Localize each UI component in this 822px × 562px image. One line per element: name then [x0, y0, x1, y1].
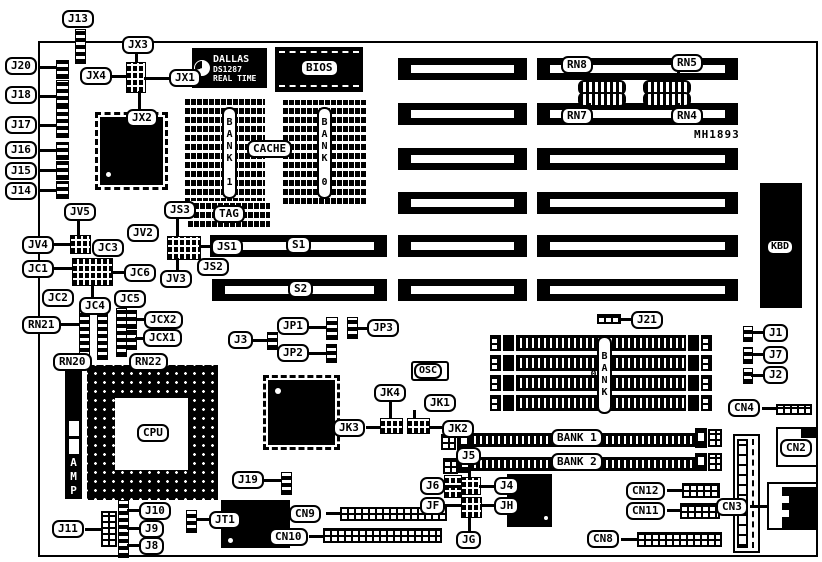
cn3-key-notch	[782, 496, 789, 503]
pin1-dot	[275, 388, 281, 394]
pointer-line	[176, 218, 179, 236]
pin1-dot	[106, 172, 111, 177]
connector-cn8	[637, 532, 722, 547]
pointer-line	[309, 535, 323, 538]
latch-hook	[461, 437, 467, 444]
cache-bank0-label: BANK 0	[317, 107, 332, 199]
slot-s2-label: S2	[288, 280, 313, 298]
isa-slot	[398, 103, 527, 125]
callout-j3: J3	[228, 331, 253, 349]
jumper-j17	[56, 108, 69, 138]
callout-jv2: JV2	[127, 224, 159, 242]
simm-latch	[503, 355, 514, 371]
jumper-j14	[56, 181, 69, 199]
pointer-line	[138, 91, 141, 109]
pointer-line	[480, 504, 494, 507]
callout-js1: JS1	[211, 238, 243, 256]
pointer-line	[751, 374, 763, 377]
callout-jf: JF	[420, 497, 445, 515]
jumper-j1	[743, 326, 753, 342]
pointer-line	[309, 326, 326, 329]
resistor-network-strip	[97, 308, 108, 360]
pointer-line	[762, 407, 776, 410]
resistor-network-rn7	[578, 92, 626, 107]
callout-j14: J14	[5, 182, 37, 200]
isa-slot	[537, 279, 738, 301]
callout-rn20: RN20	[53, 353, 92, 371]
pointer-line	[127, 527, 139, 530]
callout-cn9: CN9	[289, 505, 321, 523]
simm-bank2-label: BANK 2	[551, 453, 603, 471]
simm-latch	[688, 395, 699, 411]
simm-latch	[688, 335, 699, 351]
bios-dash-bottom	[279, 85, 359, 87]
pointer-line	[261, 479, 281, 482]
simm-latch	[503, 395, 514, 411]
simm-end-box	[701, 335, 712, 351]
bios-dash-top	[279, 51, 359, 53]
pointer-line	[751, 331, 763, 334]
simm-latch	[503, 375, 514, 391]
power-header-pins	[737, 439, 748, 548]
simm-end-box	[490, 395, 501, 411]
isa-slot	[398, 192, 527, 214]
pointer-line	[39, 66, 56, 69]
callout-cn12: CN12	[626, 482, 665, 500]
jumper-block-js	[167, 236, 201, 260]
simm-end-box	[490, 375, 501, 391]
pointer-line	[619, 318, 631, 321]
isa-slot	[398, 235, 527, 257]
callout-j6: J6	[420, 477, 445, 495]
jumper-block-jc	[72, 258, 113, 286]
callout-cn4: CN4	[728, 399, 760, 417]
callout-js2: JS2	[197, 258, 229, 276]
jumper-block-jv45	[70, 235, 91, 254]
callout-jh: JH	[494, 497, 519, 515]
callout-rn7: RN7	[561, 107, 593, 125]
callout-jk4: JK4	[374, 384, 406, 402]
isa-slot	[398, 148, 527, 170]
simm-latch	[503, 335, 514, 351]
callout-jk1: JK1	[424, 394, 456, 412]
callout-j2: J2	[763, 366, 788, 384]
pointer-line	[196, 518, 209, 521]
resistor-network-rn4	[643, 92, 691, 107]
latch-hook	[698, 433, 704, 441]
pointer-line	[135, 318, 144, 321]
pointer-line	[750, 505, 767, 508]
callout-j18: J18	[5, 86, 37, 104]
callout-jp3: JP3	[367, 319, 399, 337]
simm-end-box	[701, 355, 712, 371]
pointer-line	[77, 220, 80, 235]
connector-j11	[101, 511, 117, 547]
cache-label: CACHE	[247, 140, 292, 158]
isa-slot	[398, 58, 527, 80]
callout-cn11: CN11	[626, 502, 665, 520]
pointer-line	[444, 504, 461, 507]
pointer-line	[366, 426, 380, 429]
power-header-key-line	[752, 439, 754, 548]
pointer-line	[39, 149, 56, 152]
pointer-line	[326, 512, 340, 515]
callout-rn21: RN21	[22, 316, 61, 334]
callout-rn8: RN8	[561, 56, 593, 74]
callout-j19: J19	[232, 471, 264, 489]
callout-cn8: CN8	[587, 530, 619, 548]
latch-hook	[698, 457, 704, 465]
cn3-key-notch	[782, 510, 789, 517]
pointer-line	[127, 544, 139, 547]
pointer-line	[39, 124, 56, 127]
jumper-j3	[267, 332, 278, 350]
amp-brand-text: AMP	[67, 456, 80, 498]
callout-j9: J9	[139, 520, 164, 538]
isa-slot	[537, 235, 738, 257]
jumper-jp2	[326, 344, 337, 363]
amp-slot	[69, 421, 79, 436]
callout-jk3: JK3	[333, 419, 365, 437]
chipset-qfp-b	[268, 380, 335, 445]
cpu-label: CPU	[137, 424, 169, 442]
rtc-chip-ds1287: DALLAS DS1287 REAL TIME	[192, 48, 267, 88]
pointer-line	[677, 72, 680, 81]
callout-j21: J21	[631, 311, 663, 329]
jumper-j15	[56, 161, 69, 180]
connector-cn4	[776, 404, 812, 415]
pointer-line	[91, 284, 94, 297]
callout-rn4: RN4	[671, 107, 703, 125]
pointer-line	[429, 426, 442, 429]
callout-jx1: JX1	[169, 69, 201, 87]
callout-jp2: JP2	[277, 344, 309, 362]
callout-jcx1: JCX1	[143, 329, 182, 347]
callout-jc1: JC1	[22, 260, 54, 278]
simm-end-box	[708, 429, 722, 447]
callout-cn2: CN2	[780, 439, 812, 457]
jumper-j16	[56, 142, 69, 160]
chipset-qfp-a	[100, 117, 163, 185]
simm-end-box	[708, 453, 722, 471]
callout-j4: J4	[494, 477, 519, 495]
pointer-line	[111, 271, 124, 274]
pointer-line	[135, 337, 143, 340]
simm-end-box	[701, 395, 712, 411]
callout-j16: J16	[5, 141, 37, 159]
callout-jc5: JC5	[114, 290, 146, 308]
simm-latch	[688, 355, 699, 371]
callout-cn10: CN10	[269, 528, 308, 546]
jumper-j13	[75, 29, 86, 64]
pointer-line	[252, 339, 268, 342]
connector-cn10	[323, 528, 442, 543]
connector-cn12	[682, 483, 720, 498]
callout-jg: JG	[456, 531, 481, 549]
isa-slot	[537, 148, 738, 170]
pointer-line	[112, 75, 126, 78]
amp-slot	[69, 439, 79, 454]
simm-bank1-label: BANK 1	[551, 429, 603, 447]
motherboard-diagram: J13 J20 J18 J17 J16 J15 J14 JX3 JX4 JX1 …	[0, 0, 822, 562]
jumper-jcx1	[126, 330, 137, 350]
connector-j21	[597, 314, 621, 324]
pointer-line	[60, 323, 79, 326]
pointer-line	[479, 485, 494, 488]
callout-jx4: JX4	[80, 67, 112, 85]
callout-js3: JS3	[164, 201, 196, 219]
pointer-line	[85, 528, 101, 531]
jumper-block-jk12	[407, 418, 430, 434]
pointer-line	[54, 243, 70, 246]
callout-jc4: JC4	[79, 297, 111, 315]
rtc-type-text: REAL TIME	[213, 74, 256, 83]
pointer-line	[144, 77, 169, 80]
callout-jp1: JP1	[277, 317, 309, 335]
pointer-line	[667, 509, 680, 512]
pointer-line	[39, 95, 56, 98]
callout-jc3: JC3	[92, 239, 124, 257]
pin1-dot	[544, 516, 548, 520]
pointer-line	[444, 485, 461, 488]
callout-jc2: JC2	[42, 289, 74, 307]
callout-jc6: JC6	[124, 264, 156, 282]
pointer-line	[199, 245, 211, 248]
jumper-block-jx	[126, 62, 146, 93]
board-part-number: MH1893	[694, 128, 740, 141]
jumper-block-jk34	[380, 418, 403, 434]
rtc-part-text: DS1287	[213, 65, 256, 74]
pin1-dot	[228, 538, 233, 543]
cn2-connector-tab	[801, 427, 818, 438]
pointer-line	[127, 509, 139, 512]
callout-cn3: CN3	[716, 498, 748, 516]
jumper-j18	[56, 80, 69, 108]
jumper-jt1	[186, 510, 197, 533]
callout-jx2: JX2	[126, 109, 158, 127]
jumper-block-j5	[461, 477, 481, 495]
callout-rn5: RN5	[671, 54, 703, 72]
callout-j7: J7	[763, 346, 788, 364]
jumper-j19	[281, 472, 292, 495]
jumper-jp1	[326, 317, 338, 340]
callout-j10: J10	[139, 502, 171, 520]
simm-end-box	[490, 335, 501, 351]
rtc-brand-text: DALLAS	[213, 54, 256, 65]
tag-label: TAG	[213, 205, 245, 223]
callout-j8: J8	[139, 537, 164, 555]
simm-latch	[688, 375, 699, 391]
callout-jv5: JV5	[64, 203, 96, 221]
callout-jx3: JX3	[122, 36, 154, 54]
pointer-line	[309, 352, 326, 355]
osc-label: OSC	[414, 363, 442, 379]
callout-j13: J13	[62, 10, 94, 28]
pointer-line	[54, 267, 72, 270]
callout-jcx2: JCX2	[144, 311, 183, 329]
pointer-line	[751, 353, 763, 356]
callout-jk2: JK2	[442, 420, 474, 438]
simm-end-box	[701, 375, 712, 391]
pointer-line	[413, 410, 416, 418]
callout-j20: J20	[5, 57, 37, 75]
connector-cn11	[680, 503, 720, 519]
jumper-block-jfh	[461, 497, 482, 518]
cache-bank1-label: BANK 1	[222, 107, 237, 199]
pointer-line	[356, 327, 367, 330]
callout-rn22: RN22	[129, 353, 168, 371]
pointer-line	[588, 74, 591, 81]
cn3-connector-body	[782, 487, 818, 528]
slot-s1-label: S1	[286, 236, 311, 254]
isa-slot	[537, 192, 738, 214]
jumper-j20	[56, 60, 69, 79]
simm-bank0-label: BANK 0	[597, 336, 612, 414]
kbd-label: KBD	[766, 239, 794, 255]
callout-jv3: JV3	[160, 270, 192, 288]
callout-j5: J5	[456, 447, 481, 465]
callout-jt1: JT1	[209, 511, 241, 529]
pointer-line	[667, 489, 682, 492]
pointer-line	[176, 258, 179, 270]
bios-label: BIOS	[300, 59, 339, 77]
callout-j1: J1	[763, 324, 788, 342]
pointer-line	[39, 189, 56, 192]
pointer-line	[39, 169, 56, 172]
isa-slot	[398, 279, 527, 301]
pointer-line	[389, 402, 392, 418]
callout-j15: J15	[5, 162, 37, 180]
callout-j17: J17	[5, 116, 37, 134]
simm-end-box	[490, 355, 501, 371]
callout-jv4: JV4	[22, 236, 54, 254]
pointer-line	[621, 538, 637, 541]
pointer-line	[468, 516, 471, 531]
callout-j11: J11	[52, 520, 84, 538]
